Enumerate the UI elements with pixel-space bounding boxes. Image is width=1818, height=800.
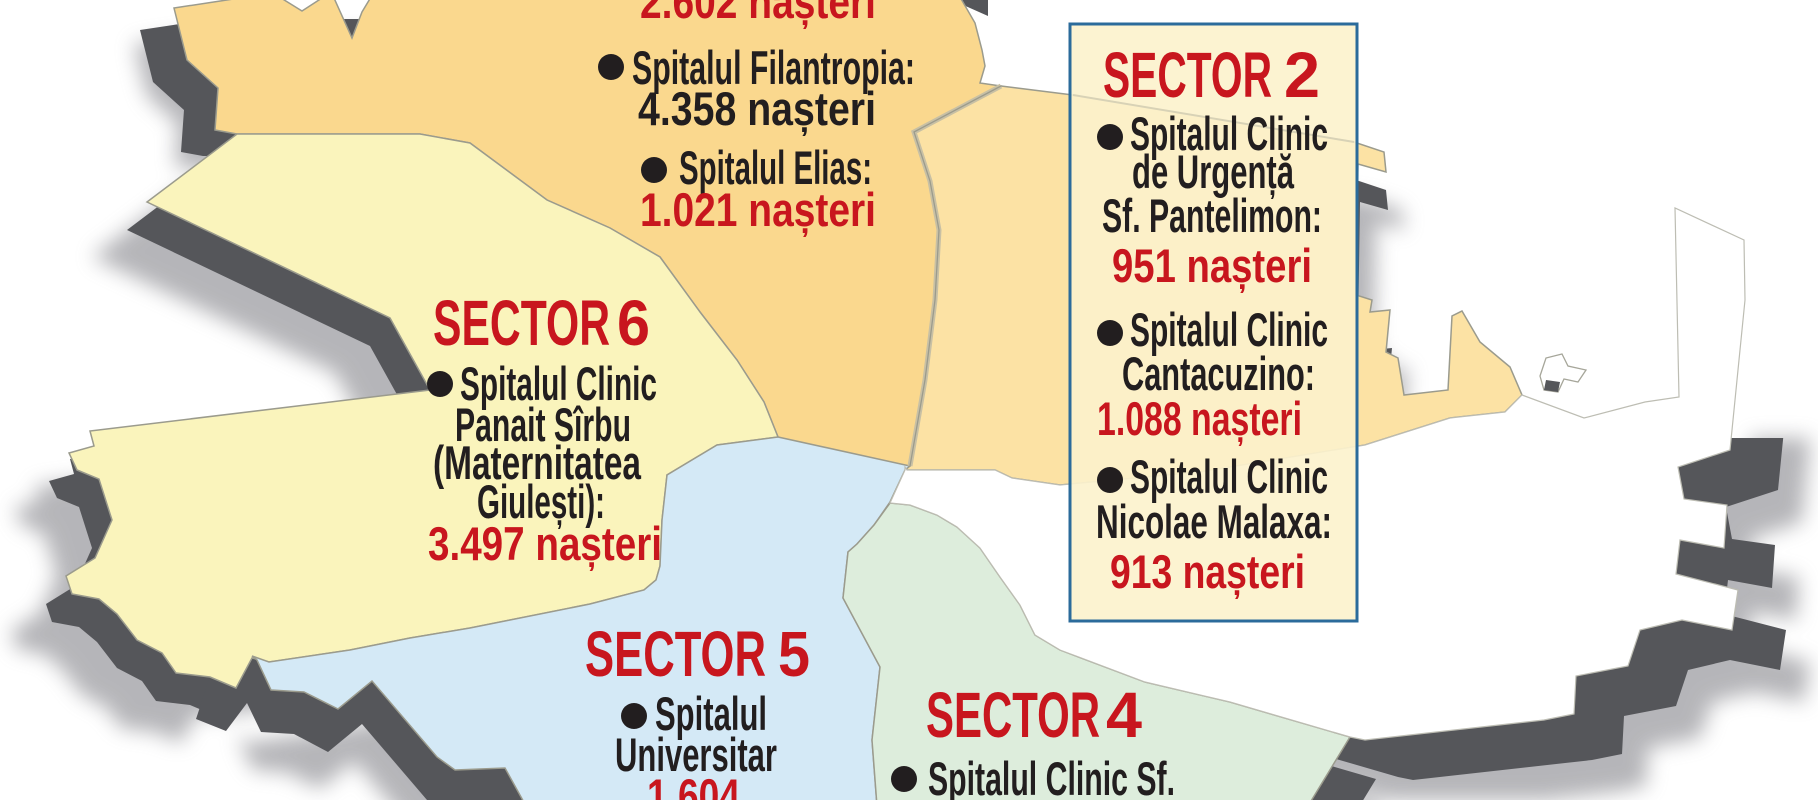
svg-text:SECTOR: SECTOR — [433, 287, 610, 359]
svg-text:Spitalul Clinic Sf.: Spitalul Clinic Sf. — [928, 752, 1175, 800]
svg-text:1.021 nașteri: 1.021 nașteri — [640, 183, 876, 237]
svg-text:6: 6 — [617, 287, 650, 359]
svg-text:SECTOR: SECTOR — [1103, 39, 1272, 111]
svg-text:SECTOR: SECTOR — [585, 618, 766, 690]
svg-text:5: 5 — [778, 618, 810, 690]
svg-text:951 nașteri: 951 nașteri — [1112, 239, 1312, 293]
svg-text:Nicolae Malaxa:: Nicolae Malaxa: — [1096, 495, 1332, 548]
svg-text:4: 4 — [1106, 679, 1142, 751]
svg-text:2.602 nașteri: 2.602 nașteri — [640, 0, 876, 29]
svg-text:1.604: 1.604 — [647, 769, 740, 800]
svg-text:3.497 nașteri: 3.497 nașteri — [428, 517, 662, 571]
svg-text:2: 2 — [1284, 39, 1320, 111]
svg-text:SECTOR: SECTOR — [926, 679, 1100, 751]
svg-text:913 nașteri: 913 nașteri — [1110, 545, 1305, 599]
svg-text:Sf. Pantelimon:: Sf. Pantelimon: — [1102, 189, 1322, 242]
svg-text:4.358 nașteri: 4.358 nașteri — [638, 82, 876, 136]
svg-text:1.088 nașteri: 1.088 nașteri — [1097, 392, 1302, 446]
